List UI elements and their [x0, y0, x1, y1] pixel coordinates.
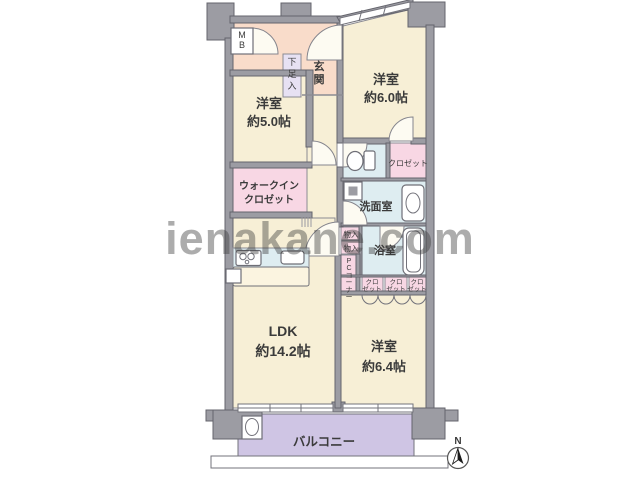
label-wic-line2: クロゼット — [244, 193, 294, 206]
label-closet-row-line2: ゼット — [386, 284, 406, 293]
label-ldk-size: 約14.2帖 — [255, 343, 310, 359]
wall-segment — [306, 70, 313, 147]
toilet-tank — [364, 151, 375, 170]
wall-segment — [341, 178, 426, 181]
label-pc-corner: PCコーナー — [346, 258, 353, 301]
wall-segment — [230, 162, 312, 168]
label-meter-box: MB — [238, 30, 246, 50]
label-closet-row-line2: ゼット — [362, 284, 382, 293]
label-bedroom-left-name: 洋室 — [256, 96, 282, 111]
toilet-bowl — [347, 152, 363, 171]
label-bedroom-bottom-name: 洋室 — [371, 339, 397, 354]
wall-segment — [408, 2, 445, 27]
balcony-rail — [211, 456, 448, 468]
wall-segment — [230, 70, 312, 76]
wall-segment — [335, 255, 341, 408]
wall-segment — [230, 16, 340, 23]
north-label: N — [454, 436, 461, 447]
compass-icon: N — [448, 436, 469, 469]
label-ldk-name: LDK — [269, 323, 298, 339]
label-wic-line1: ウォークイン — [239, 180, 299, 192]
label-closet-row-line1: クロ — [411, 278, 424, 286]
kitchen-cabinet — [226, 269, 241, 283]
wall-segment — [412, 408, 445, 439]
label-closet-row-line1: クロ — [390, 278, 403, 286]
floor-plan-page: 洋室 約6.0帖 洋室 約5.0帖 ウォークイン クロゼット LDK 約14.2… — [0, 0, 640, 480]
label-closet-row-line1: クロ — [366, 278, 379, 286]
label-washroom: 洗面室 — [360, 199, 393, 213]
label-closet-row-line2: ゼット — [407, 284, 427, 293]
watermark-text: ienakane.com — [165, 213, 475, 264]
toilet-icon — [347, 151, 375, 171]
label-bedroom-top-size: 約6.0帖 — [364, 90, 408, 105]
wall-segment — [281, 3, 311, 17]
kitchen-island — [233, 267, 309, 286]
label-bedroom-bottom-size: 約6.4帖 — [362, 359, 406, 374]
label-closet-top: クロゼット — [388, 158, 428, 168]
washer-drain — [349, 187, 358, 196]
label-entrance: 玄関 — [314, 59, 325, 86]
label-bedroom-top-name: 洋室 — [373, 72, 399, 87]
washer-pan-icon — [344, 182, 362, 200]
floor-plan: 洋室 約6.0帖 洋室 約5.0帖 ウォークイン クロゼット LDK 約14.2… — [0, 0, 640, 480]
label-balcony: バルコニー — [293, 435, 355, 449]
balcony-tap-icon — [242, 416, 262, 439]
label-shoe-cabinet: 下足入 — [287, 57, 296, 91]
label-bedroom-left-size: 約5.0帖 — [247, 114, 291, 129]
